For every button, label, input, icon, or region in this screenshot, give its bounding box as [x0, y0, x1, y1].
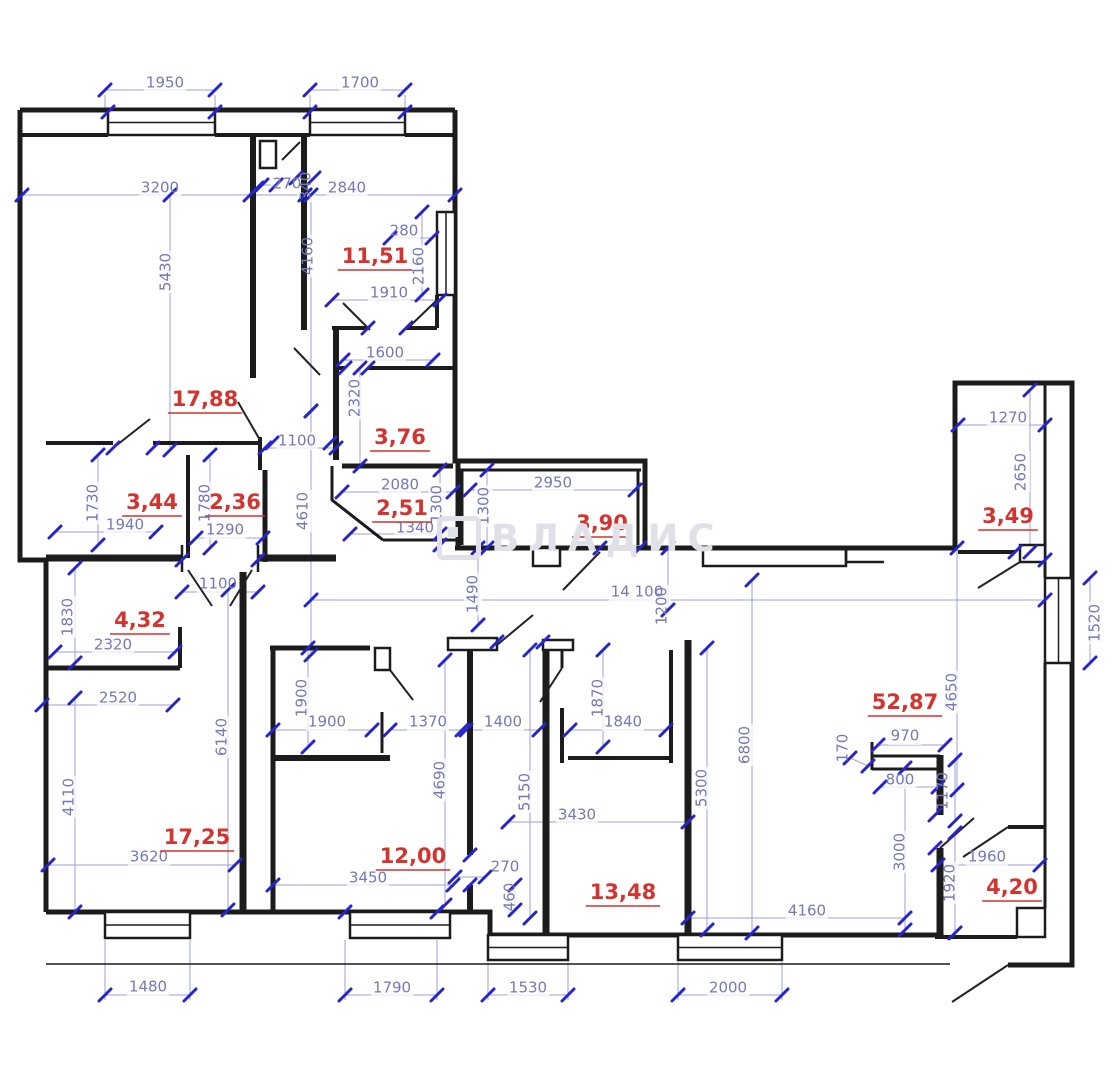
dimension-label: 800: [886, 771, 915, 789]
dimension-label: 1200: [653, 587, 671, 625]
dimension-label: 4690: [431, 761, 449, 799]
watermark: ВЛАДИС: [437, 516, 724, 560]
dimension-label: 5430: [157, 253, 175, 291]
dimension-label: 1530: [509, 979, 547, 997]
floor-plan-canvas: 1950170032002703402840280216019105430416…: [0, 0, 1113, 1080]
dimension-label: 170: [834, 734, 852, 763]
watermark-text: ВЛАДИС: [491, 517, 724, 560]
room-area-label: 17,25: [164, 825, 230, 849]
room-area-label: 3,49: [982, 504, 1034, 528]
dimension-label: 3200: [141, 179, 179, 197]
dimension-label: 2160: [410, 247, 428, 285]
dimension-label: 1830: [59, 598, 77, 636]
dimension-label: 1940: [106, 516, 144, 534]
dimension-label: 1270: [989, 409, 1027, 427]
dimension-label: 1170: [934, 772, 952, 810]
dimension-label: 4160: [299, 237, 317, 275]
dimension-label: 1730: [84, 484, 102, 522]
dimension-label: 2320: [94, 636, 132, 654]
dimension-label: 2000: [709, 979, 747, 997]
room-area-label: 2,51: [376, 496, 428, 520]
room-area-label: 13,48: [590, 880, 656, 904]
dimension-label: 5300: [693, 769, 711, 807]
dimension-label: 1480: [129, 978, 167, 996]
dimension-label: 1960: [968, 848, 1006, 866]
dimension-label: 1790: [373, 979, 411, 997]
dimension-label: 1950: [146, 74, 184, 92]
room-area-label: 4,20: [986, 875, 1038, 899]
dimension-label: 1490: [464, 575, 482, 613]
dimension-label: 5150: [516, 773, 534, 811]
room-area-label: 2,36: [209, 490, 261, 514]
room-area-label: 11,51: [342, 244, 408, 268]
dimension-label: 1840: [604, 713, 642, 731]
dimension-label: 3000: [891, 833, 909, 871]
dimension-label: 6140: [213, 718, 231, 756]
dimension-label: 1600: [366, 344, 404, 362]
dimension-label: 2320: [346, 379, 364, 417]
room-area-label: 17,88: [172, 387, 238, 411]
dimension-label: 1900: [293, 679, 311, 717]
dimension-label: 1100: [278, 432, 316, 450]
dimension-label: 340: [297, 172, 315, 201]
dimension-label: 1920: [941, 864, 959, 902]
dimension-label: 1900: [308, 713, 346, 731]
dimension-label: 3450: [349, 869, 387, 887]
dimension-label: 2080: [381, 476, 419, 494]
dimension-label: 280: [390, 222, 419, 240]
dimension-label: 1100: [199, 575, 237, 593]
dimension-label: 270: [491, 858, 520, 876]
door-swings: [113, 142, 1020, 1002]
dimension-label: 2650: [1012, 453, 1030, 491]
dimension-label: 970: [891, 727, 920, 745]
dimension-label: 4650: [943, 673, 961, 711]
dimension-label: 2840: [328, 179, 366, 197]
dimension-label: 6800: [736, 726, 754, 764]
dimension-label: 4160: [788, 902, 826, 920]
dimension-label: 4610: [294, 492, 312, 530]
room-area-label: 4,32: [114, 608, 166, 632]
dimension-label: 2520: [99, 689, 137, 707]
dimension-label: 460: [501, 883, 519, 912]
dimension-label: 1400: [484, 713, 522, 731]
dimension-label: 4110: [60, 778, 78, 816]
dimension-label: 3430: [558, 806, 596, 824]
dimension-label: 2950: [534, 474, 572, 492]
dimension-label: 1910: [370, 284, 408, 302]
room-area-label: 52,87: [872, 690, 938, 714]
room-area-label: 3,44: [126, 490, 178, 514]
dimension-label: 1290: [206, 521, 244, 539]
room-area-label: 3,76: [374, 425, 426, 449]
dimension-label: 1700: [341, 74, 379, 92]
room-area-label: 12,00: [380, 844, 446, 868]
dimension-label: 1370: [409, 713, 447, 731]
dimension-label: 1870: [589, 679, 607, 717]
watermark-logo-icon: [437, 516, 481, 560]
dimension-label: 1520: [1086, 604, 1104, 642]
